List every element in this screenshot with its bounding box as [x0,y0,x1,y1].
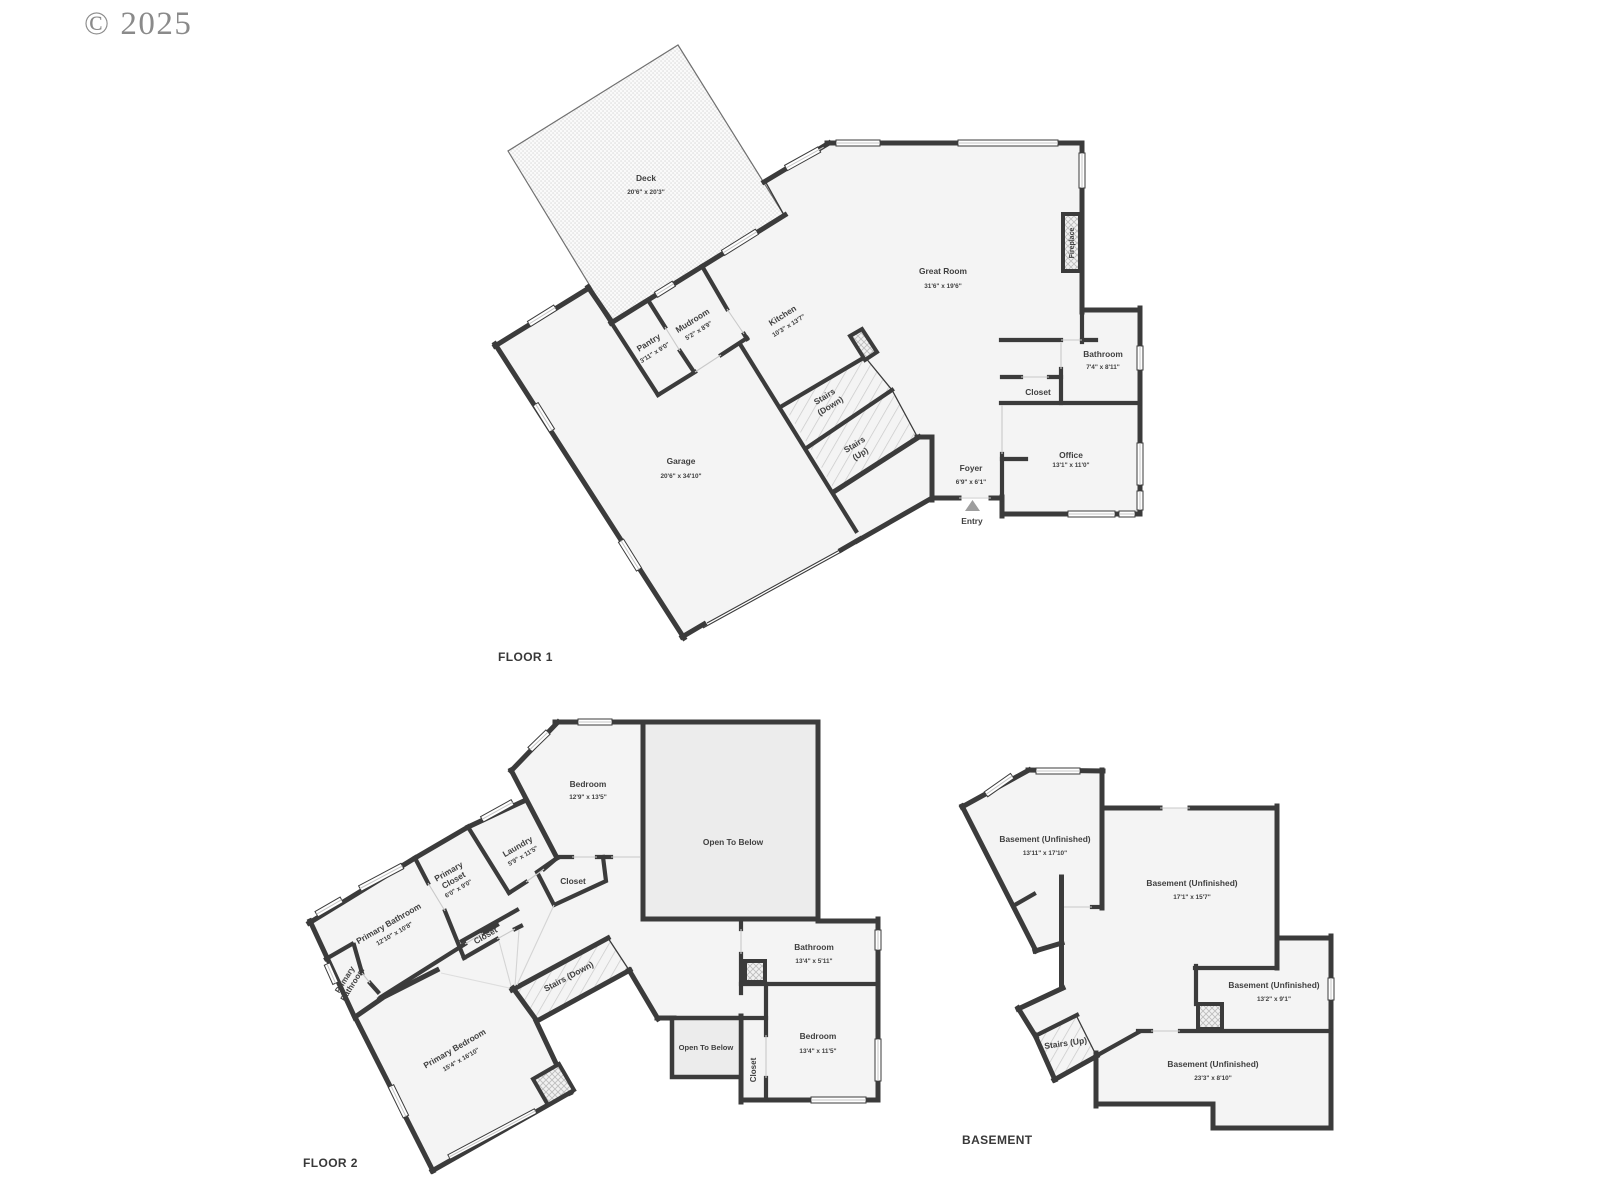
svg-text:23'3" x 8'10": 23'3" x 8'10" [1194,1075,1232,1082]
svg-text:6'9" x 6'1": 6'9" x 6'1" [956,479,986,486]
svg-text:Open To Below: Open To Below [679,1043,734,1052]
svg-text:13'1" x 11'0": 13'1" x 11'0" [1052,462,1089,469]
svg-text:17'1" x 15'7": 17'1" x 15'7" [1173,894,1211,901]
svg-text:Great Room: Great Room [919,266,967,276]
svg-text:13'4" x 5'11": 13'4" x 5'11" [795,958,832,965]
svg-text:Entry: Entry [961,516,983,526]
svg-text:Closet: Closet [749,1057,758,1082]
svg-text:13'11" x 17'10": 13'11" x 17'10" [1023,850,1067,857]
svg-text:31'6" x 19'6": 31'6" x 19'6" [924,283,962,290]
svg-text:7'4" x 8'11": 7'4" x 8'11" [1086,364,1120,371]
svg-text:Bathroom: Bathroom [1083,349,1123,359]
svg-text:Open To Below: Open To Below [703,837,764,847]
svg-text:Fireplace: Fireplace [1069,228,1076,259]
svg-text:12'9" x 13'5": 12'9" x 13'5" [569,794,607,801]
svg-text:13'4" x 11'5": 13'4" x 11'5" [799,1048,836,1055]
svg-text:Office: Office [1059,450,1083,460]
svg-text:Bedroom: Bedroom [570,779,607,789]
svg-text:Closet: Closet [1025,387,1051,397]
svg-text:20'6" x 34'10": 20'6" x 34'10" [660,473,701,480]
svg-text:© 2025: © 2025 [84,6,192,42]
svg-text:FLOOR 2: FLOOR 2 [303,1156,358,1170]
svg-text:Foyer: Foyer [960,463,984,473]
svg-text:Closet: Closet [560,876,586,886]
svg-text:Bathroom: Bathroom [794,942,834,952]
svg-text:Deck: Deck [636,173,656,183]
svg-text:13'2" x 9'1": 13'2" x 9'1" [1257,996,1291,1003]
svg-text:Basement (Unfinished): Basement (Unfinished) [1167,1059,1258,1069]
svg-text:BASEMENT: BASEMENT [962,1133,1033,1147]
svg-text:Basement (Unfinished): Basement (Unfinished) [1146,878,1237,888]
svg-text:20'6" x 20'3": 20'6" x 20'3" [627,189,665,196]
svg-text:Garage: Garage [667,456,696,466]
svg-text:Bedroom: Bedroom [800,1031,837,1041]
svg-text:Basement (Unfinished): Basement (Unfinished) [1228,980,1319,990]
svg-text:FLOOR 1: FLOOR 1 [498,650,553,664]
svg-text:Basement (Unfinished): Basement (Unfinished) [999,834,1090,844]
